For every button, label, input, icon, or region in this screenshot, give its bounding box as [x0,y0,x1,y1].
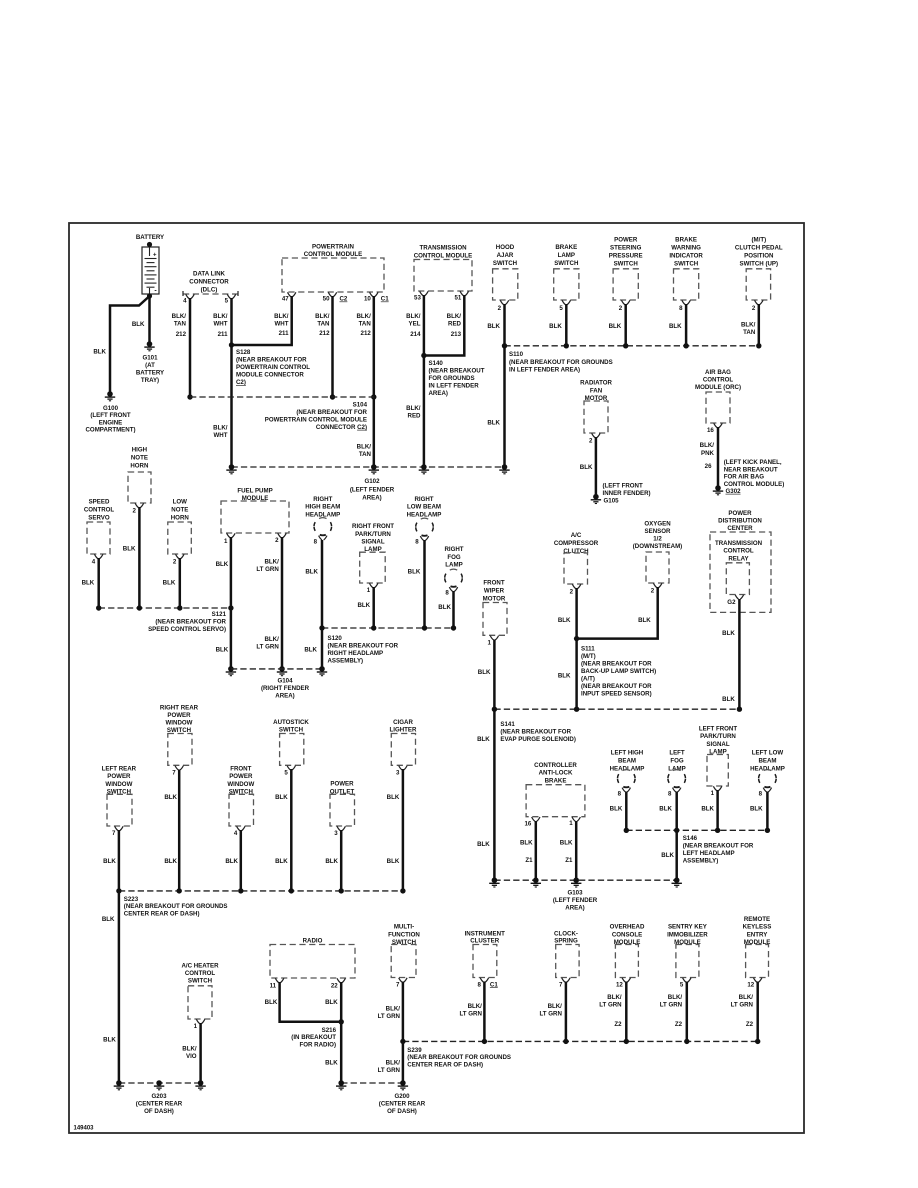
svg-text:POWERTRAIN CONTROL: POWERTRAIN CONTROL [236,364,310,371]
svg-text:CONTROL: CONTROL [723,548,754,555]
svg-text:AREA): AREA) [362,495,381,502]
svg-text:TRAY): TRAY) [141,377,159,384]
svg-text:212: 212 [361,330,372,337]
svg-text:S216: S216 [322,1027,337,1034]
svg-text:12: 12 [747,981,754,988]
svg-text:LEFT REAR: LEFT REAR [102,765,137,772]
svg-text:BLK: BLK [487,420,500,427]
svg-text:12: 12 [616,981,623,988]
svg-text:SWITCH: SWITCH [493,260,518,267]
svg-text:(M/T): (M/T) [751,236,766,243]
svg-text:BLK: BLK [408,569,421,576]
svg-text:4: 4 [234,830,238,837]
svg-text:LT GRN: LT GRN [256,566,279,573]
svg-text:(CENTER REAR: (CENTER REAR [379,1100,426,1107]
svg-text:POWER: POWER [330,780,354,787]
svg-text:FOR RADIO): FOR RADIO) [300,1041,337,1048]
svg-text:LT GRN: LT GRN [378,1013,401,1020]
svg-text:4: 4 [92,559,96,566]
svg-text:INDICATOR: INDICATOR [669,253,703,260]
svg-text:A/C: A/C [571,532,582,539]
svg-text:LAMP: LAMP [558,252,575,259]
svg-text:G100: G100 [103,405,119,412]
svg-text:BLK: BLK [225,858,238,865]
svg-text:CONTROL MODULE: CONTROL MODULE [414,252,473,259]
svg-text:RIGHT: RIGHT [414,496,433,503]
svg-text:DISTRIBUTION: DISTRIBUTION [718,517,762,524]
svg-text:(DOWNSTREAM): (DOWNSTREAM) [633,543,682,550]
svg-text:Z2: Z2 [614,1021,622,1028]
svg-text:BACK-UP LAMP SWITCH): BACK-UP LAMP SWITCH) [581,668,656,675]
svg-text:HORN: HORN [171,514,190,521]
svg-text:BLK: BLK [638,617,651,624]
svg-text:LOW BEAM: LOW BEAM [407,504,441,511]
svg-text:Z1: Z1 [525,857,533,864]
svg-text:CLOCK-: CLOCK- [554,930,578,937]
svg-text:(NEAR BREAKOUT: (NEAR BREAKOUT [429,368,485,375]
svg-text:BLK: BLK [103,858,116,865]
svg-text:BLK/: BLK/ [315,313,330,320]
svg-text:8: 8 [445,590,449,597]
svg-text:LT GRN: LT GRN [731,1002,754,1009]
svg-text:RIGHT: RIGHT [313,496,332,503]
svg-text:POWER: POWER [167,712,191,719]
svg-text:5: 5 [225,298,229,305]
svg-text:4: 4 [183,298,187,305]
svg-text:G105: G105 [604,498,620,505]
svg-text:COMPARTMENT): COMPARTMENT) [85,427,135,434]
svg-text:BLK: BLK [478,669,491,676]
svg-text:DATA LINK: DATA LINK [193,270,226,277]
svg-text:BEAM: BEAM [618,757,636,764]
svg-text:(NEAR BREAKOUT FOR: (NEAR BREAKOUT FOR [581,660,652,667]
svg-text:(NEAR BREAKOUT FOR GROUNDS: (NEAR BREAKOUT FOR GROUNDS [124,903,228,910]
svg-text:EVAP PURGE SOLENOID): EVAP PURGE SOLENOID) [500,736,576,743]
svg-text:(DLC): (DLC) [201,286,218,293]
svg-text:+: + [153,253,157,259]
svg-text:8: 8 [618,790,622,797]
svg-text:(NEAR BREAKOUT FOR GROUNDS: (NEAR BREAKOUT FOR GROUNDS [407,1054,511,1061]
svg-text:A/C HEATER: A/C HEATER [181,962,219,969]
svg-text:C1: C1 [490,981,498,988]
svg-text:CONSOLE: CONSOLE [612,931,642,938]
svg-text:G2: G2 [727,599,736,606]
svg-text:G101: G101 [142,354,158,361]
svg-text:50: 50 [323,296,330,303]
svg-text:C2: C2 [340,296,348,303]
svg-text:BLK: BLK [560,840,573,847]
svg-text:(LEFT FRONT: (LEFT FRONT [90,412,130,419]
svg-text:MODULE CONNECTOR: MODULE CONNECTOR [236,372,304,379]
svg-text:(RIGHT FENDER: (RIGHT FENDER [261,685,310,692]
svg-text:BLK: BLK [275,858,288,865]
svg-text:LEFT LOW: LEFT LOW [752,749,784,756]
svg-text:TAN: TAN [359,451,372,458]
svg-text:BLK/: BLK/ [668,994,683,1001]
svg-text:1: 1 [367,587,371,594]
svg-text:BLK/: BLK/ [739,994,754,1001]
svg-text:POWER: POWER [728,510,752,517]
svg-text:BLK/: BLK/ [274,313,289,320]
svg-text:BLK: BLK [93,349,106,356]
svg-text:MULTI-: MULTI- [394,924,414,931]
svg-text:BATTERY: BATTERY [136,234,164,241]
svg-text:CONTROL: CONTROL [84,506,115,513]
svg-text:LOW: LOW [173,498,188,505]
svg-text:VIO: VIO [186,1053,197,1060]
svg-text:LT GRN: LT GRN [660,1002,683,1009]
svg-text:8: 8 [668,790,672,797]
svg-text:BLK: BLK [325,858,338,865]
svg-text:BRAKE: BRAKE [555,244,577,251]
svg-text:8: 8 [477,981,481,988]
svg-text:MOTOR: MOTOR [483,595,506,602]
svg-text:2: 2 [619,305,623,312]
svg-text:10: 10 [364,296,371,303]
svg-text:(NEAR BREAKOUT FOR GROUNDS: (NEAR BREAKOUT FOR GROUNDS [509,359,613,366]
svg-text:RADIO: RADIO [303,937,323,944]
svg-text:(NEAR BREAKOUT FOR: (NEAR BREAKOUT FOR [155,619,226,626]
svg-text:11: 11 [270,983,277,990]
svg-text:S128: S128 [236,349,251,356]
svg-text:TAN: TAN [743,329,756,336]
svg-text:S110: S110 [509,351,524,358]
svg-text:7: 7 [396,981,400,988]
svg-text:BLK: BLK [103,1037,116,1044]
svg-text:BLK/: BLK/ [264,636,279,643]
svg-text:BLK: BLK [610,806,623,813]
svg-text:FRONT: FRONT [483,579,504,586]
svg-text:CENTER REAR OF DASH): CENTER REAR OF DASH) [124,910,200,917]
svg-text:LT GRN: LT GRN [599,1002,622,1009]
svg-text:SPEED: SPEED [89,498,110,505]
svg-text:(LEFT FENDER: (LEFT FENDER [553,897,598,904]
svg-text:WHT: WHT [214,432,228,439]
svg-text:FOR GROUNDS: FOR GROUNDS [429,375,475,382]
svg-text:BLK/: BLK/ [406,405,421,412]
svg-text:BRAKE: BRAKE [675,236,697,243]
svg-text:BLK: BLK [659,806,672,813]
svg-text:ENGINE: ENGINE [99,419,123,426]
svg-text:POWER: POWER [614,236,638,243]
svg-text:BLK: BLK [357,602,370,609]
svg-text:INNER FENDER): INNER FENDER) [603,490,651,497]
svg-text:213: 213 [451,331,462,338]
svg-text:BLK: BLK [669,323,682,330]
svg-text:RIGHT REAR: RIGHT REAR [160,704,199,711]
svg-text:BLK: BLK [558,617,571,624]
svg-text:SWITCH (UP): SWITCH (UP) [740,261,779,268]
svg-text:AJAR: AJAR [497,252,514,259]
svg-text:INPUT SPEED SENSOR): INPUT SPEED SENSOR) [581,690,652,697]
svg-text:FAN: FAN [590,387,603,394]
svg-text:BLK/: BLK/ [700,442,715,449]
svg-text:212: 212 [176,331,187,338]
svg-text:SERVO: SERVO [88,514,110,521]
svg-text:47: 47 [282,296,289,303]
svg-text:C1: C1 [381,296,389,303]
svg-text:211: 211 [218,331,228,338]
svg-text:1: 1 [487,640,491,647]
svg-text:(A/T): (A/T) [581,675,595,682]
svg-text:214: 214 [410,331,421,338]
svg-text:BLK: BLK [304,646,317,653]
svg-text:CENTER: CENTER [727,525,753,532]
svg-text:5: 5 [559,305,563,312]
svg-text:OVERHEAD: OVERHEAD [610,924,645,931]
svg-text:WARNING: WARNING [671,245,701,252]
svg-text:TRANSMISSION: TRANSMISSION [419,244,467,251]
svg-text:BLK: BLK [275,794,288,801]
svg-text:(NEAR BREAKOUT FOR: (NEAR BREAKOUT FOR [581,683,652,690]
svg-text:COMPRESSOR: COMPRESSOR [554,540,599,547]
svg-text:ASSEMBLY): ASSEMBLY) [328,657,364,664]
svg-text:BLK: BLK [216,646,229,653]
svg-text:BLK: BLK [722,630,735,637]
svg-text:BLK: BLK [325,999,338,1006]
svg-text:LT GRN: LT GRN [378,1067,401,1074]
svg-text:2: 2 [589,438,593,445]
svg-text:WHT: WHT [275,320,289,327]
svg-text:HIGH: HIGH [132,446,148,453]
svg-text:1: 1 [224,538,228,545]
svg-text:C2): C2) [236,379,246,386]
svg-text:BLK/: BLK/ [406,313,421,320]
svg-text:CLUTCH: CLUTCH [563,548,589,555]
svg-text:BLK/: BLK/ [356,313,371,320]
svg-text:TAN: TAN [174,320,187,327]
svg-text:BLK: BLK [477,841,490,848]
svg-text:CIGAR: CIGAR [393,719,413,726]
svg-text:S104: S104 [353,401,368,408]
svg-text:SIGNAL: SIGNAL [706,741,729,748]
svg-text:1: 1 [711,790,715,797]
svg-text:G104: G104 [277,678,293,685]
svg-text:MODULE (ORC): MODULE (ORC) [695,384,741,391]
svg-text:SWITCH: SWITCH [674,261,699,268]
svg-text:BLK: BLK [164,794,177,801]
svg-text:YEL: YEL [409,321,421,328]
svg-text:FOG: FOG [447,554,461,561]
svg-text:LT GRN: LT GRN [459,1011,482,1018]
svg-text:Z1: Z1 [565,857,573,864]
svg-text:RED: RED [408,413,422,420]
svg-text:(NEAR BREAKOUT FOR: (NEAR BREAKOUT FOR [236,357,307,364]
svg-text:BLK: BLK [123,546,136,553]
svg-text:HORN: HORN [130,462,149,469]
svg-text:RIGHT: RIGHT [444,546,463,553]
svg-text:51: 51 [454,295,461,302]
svg-text:RIGHT FRONT: RIGHT FRONT [352,523,394,530]
svg-text:NOTE: NOTE [171,506,188,513]
svg-text:CONTROL: CONTROL [703,376,734,383]
svg-text:LEFT HIGH: LEFT HIGH [611,749,644,756]
svg-text:8: 8 [415,539,419,546]
svg-text:AUTOSTICK: AUTOSTICK [273,719,309,726]
svg-text:LAMP: LAMP [445,562,462,569]
svg-text:CONNECTOR: CONNECTOR [189,278,229,285]
svg-text:SWITCH: SWITCH [554,260,579,267]
svg-text:AREA): AREA) [565,905,584,912]
svg-text:BLK: BLK [438,604,451,611]
svg-text:BLK/: BLK/ [447,313,462,320]
svg-text:BLK: BLK [520,840,533,847]
svg-text:26: 26 [705,463,712,470]
svg-text:LEFT FRONT: LEFT FRONT [699,725,737,732]
svg-text:LEFT: LEFT [669,749,685,756]
svg-text:BLK/: BLK/ [172,313,187,320]
svg-text:CONTROLLER: CONTROLLER [534,762,577,769]
svg-text:HIGH BEAM: HIGH BEAM [305,504,340,511]
svg-text:BLK: BLK [325,1060,338,1067]
svg-text:22: 22 [331,983,338,990]
svg-text:S120: S120 [328,635,343,642]
svg-text:BLK: BLK [132,321,145,328]
svg-text:BEAM: BEAM [758,757,776,764]
svg-text:HEADLAMP: HEADLAMP [750,765,785,772]
svg-text:3: 3 [396,769,400,776]
svg-text:7: 7 [172,769,176,776]
svg-text:WINDOW: WINDOW [166,720,193,727]
svg-text:2: 2 [498,305,502,312]
svg-text:ASSEMBLY): ASSEMBLY) [683,858,719,865]
svg-text:S111: S111 [581,645,595,652]
svg-text:16: 16 [707,427,714,434]
svg-text:211: 211 [279,330,289,337]
svg-text:BLK: BLK [387,858,400,865]
svg-text:BLK: BLK [82,580,95,587]
svg-text:HEADLAMP: HEADLAMP [610,765,645,772]
svg-text:IMMOBILIZER: IMMOBILIZER [667,931,708,938]
svg-text:3: 3 [334,830,338,837]
svg-text:FUNCTION: FUNCTION [388,931,420,938]
svg-text:HOOD: HOOD [496,244,515,251]
svg-text:G103: G103 [567,889,583,896]
svg-text:BLK: BLK [549,323,562,330]
svg-text:S141: S141 [500,721,515,728]
svg-text:G203: G203 [151,1093,167,1100]
svg-text:BLK: BLK [305,569,318,576]
svg-text:1/2: 1/2 [653,536,662,543]
svg-text:TAN: TAN [359,320,372,327]
svg-text:INSTRUMENT: INSTRUMENT [465,930,506,937]
svg-text:KEYLESS: KEYLESS [743,924,772,931]
svg-text:Z2: Z2 [746,1021,754,1028]
svg-text:SENSOR: SENSOR [645,528,671,535]
svg-text:OF DASH): OF DASH) [387,1108,417,1115]
svg-text:2: 2 [173,559,177,566]
svg-text:BLK: BLK [387,794,400,801]
svg-text:G200: G200 [394,1093,410,1100]
svg-text:CENTER REAR OF DASH): CENTER REAR OF DASH) [407,1061,483,1068]
svg-text:TAN: TAN [317,320,330,327]
svg-text:(AT: (AT [145,362,155,369]
svg-text:BLK: BLK [265,999,278,1006]
svg-text:SENTRY KEY: SENTRY KEY [668,924,707,931]
svg-text:AREA): AREA) [275,693,294,700]
svg-text:SWITCH: SWITCH [279,727,304,734]
svg-text:WINDOW: WINDOW [227,781,254,788]
svg-text:G302: G302 [726,488,742,495]
svg-text:LAMP: LAMP [668,765,685,772]
svg-text:BLK/: BLK/ [213,425,228,432]
svg-text:TRANSMISSION: TRANSMISSION [715,540,763,547]
svg-text:S140: S140 [429,360,444,367]
svg-text:BLK/: BLK/ [468,1003,483,1010]
svg-text:(M/T): (M/T) [581,653,596,660]
svg-text:BLK: BLK [477,736,490,743]
svg-text:NOTE: NOTE [131,454,148,461]
svg-text:RED: RED [448,321,462,328]
svg-text:(LEFT FRONT: (LEFT FRONT [603,483,643,490]
svg-text:7: 7 [559,981,563,988]
svg-text:8: 8 [759,790,763,797]
svg-text:2: 2 [275,537,279,544]
svg-text:BLK: BLK [102,916,115,923]
svg-text:S146: S146 [683,835,698,842]
svg-text:FOG: FOG [670,757,684,764]
svg-text:BLK/: BLK/ [264,559,279,566]
svg-text:BRAKE: BRAKE [545,778,567,785]
svg-text:BLK/: BLK/ [182,1045,197,1052]
svg-text:RADIATOR: RADIATOR [580,380,612,387]
svg-text:BLK: BLK [164,858,177,865]
svg-text:AREA): AREA) [429,390,448,397]
svg-text:212: 212 [319,330,330,337]
svg-text:RELAY: RELAY [728,556,748,563]
svg-text:NEAR BREAKOUT: NEAR BREAKOUT [724,466,778,473]
svg-text:16: 16 [524,821,531,828]
svg-text:(NEAR BREAKOUT FOR: (NEAR BREAKOUT FOR [296,409,367,416]
svg-text:S239: S239 [407,1047,422,1054]
svg-text:(NEAR BREAKOUT FOR: (NEAR BREAKOUT FOR [500,728,571,735]
svg-text:BLK: BLK [722,696,735,703]
svg-text:BLK: BLK [750,806,763,813]
svg-text:8: 8 [314,539,318,546]
svg-text:SWITCH: SWITCH [188,978,213,985]
svg-text:7: 7 [112,830,116,837]
svg-text:CONTROL: CONTROL [185,970,216,977]
svg-text:PARK/TURN: PARK/TURN [355,531,391,538]
svg-text:PARK/TURN: PARK/TURN [700,733,736,740]
svg-text:BLK/: BLK/ [548,1003,563,1010]
svg-text:(NEAR BREAKOUT FOR: (NEAR BREAKOUT FOR [683,843,754,850]
svg-text:149403: 149403 [74,1125,95,1131]
svg-text:(LEFT KICK PANEL,: (LEFT KICK PANEL, [724,459,782,466]
svg-text:53: 53 [414,295,421,302]
svg-text:FUEL PUMP: FUEL PUMP [237,487,272,494]
svg-text:WIPER: WIPER [484,587,505,594]
svg-text:OF DASH): OF DASH) [144,1108,174,1115]
svg-text:BLK: BLK [701,806,714,813]
svg-text:OXYGEN: OXYGEN [644,520,671,527]
svg-text:POWERTRAIN CONTROL MODULE: POWERTRAIN CONTROL MODULE [265,416,367,423]
svg-text:BLK: BLK [580,464,593,471]
svg-text:WHT: WHT [214,320,228,327]
svg-text:2: 2 [132,508,136,515]
svg-text:2: 2 [651,588,655,595]
svg-text:BLK/: BLK/ [386,1059,401,1066]
svg-text:CONNECTOR C2): CONNECTOR C2) [316,424,367,431]
svg-text:PRESSURE: PRESSURE [609,253,643,260]
svg-text:BLK: BLK [487,323,500,330]
svg-text:2: 2 [570,589,574,596]
svg-text:2: 2 [752,305,756,312]
svg-text:BATTERY: BATTERY [136,369,164,376]
svg-text:POWER: POWER [107,773,131,780]
svg-text:PNK: PNK [701,450,715,457]
svg-text:REMOTE: REMOTE [744,916,770,923]
